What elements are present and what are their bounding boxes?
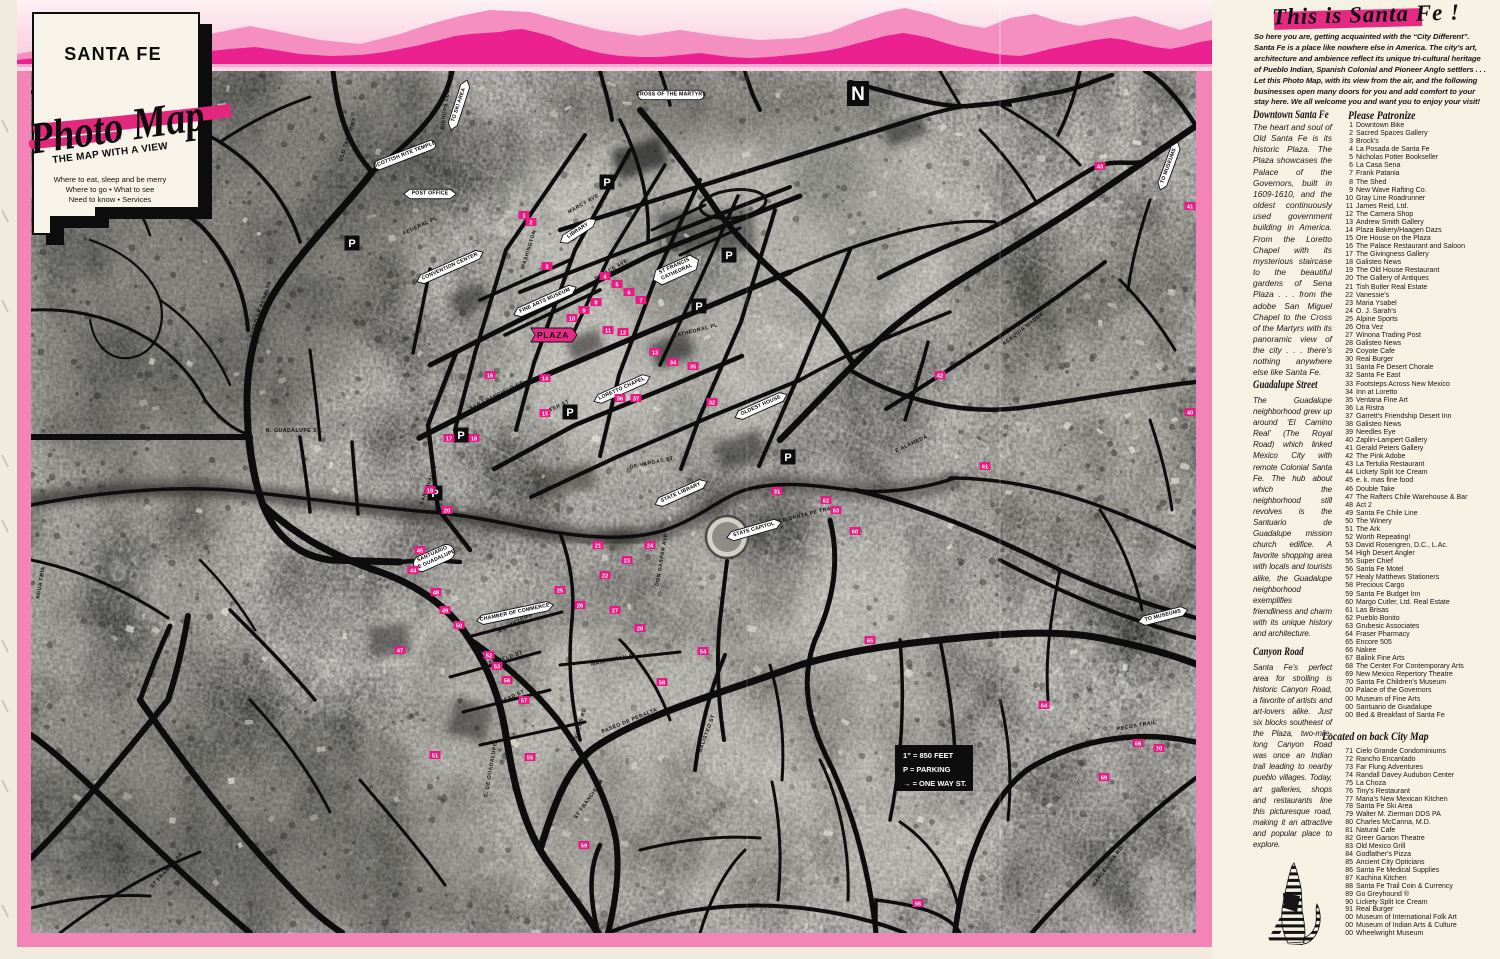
- svg-text:45: 45: [417, 548, 424, 554]
- svg-text:P: P: [457, 430, 464, 442]
- svg-text:36: 36: [617, 396, 624, 402]
- svg-text:22: 22: [602, 573, 608, 579]
- svg-text:70: 70: [1156, 746, 1162, 752]
- svg-text:P: P: [566, 407, 573, 419]
- svg-text:42: 42: [937, 373, 943, 379]
- svg-text:57: 57: [521, 698, 527, 704]
- svg-text:2: 2: [529, 220, 532, 226]
- svg-text:40: 40: [1187, 410, 1193, 416]
- svg-text:64: 64: [1041, 703, 1048, 709]
- svg-text:49: 49: [442, 608, 449, 614]
- svg-text:63: 63: [833, 508, 840, 514]
- svg-text:28: 28: [637, 626, 644, 632]
- svg-text:26: 26: [577, 603, 584, 609]
- svg-text:12: 12: [620, 330, 626, 336]
- svg-text:P: P: [725, 250, 732, 262]
- svg-text:P = PARKING: P = PARKING: [903, 765, 951, 774]
- svg-text:65: 65: [867, 638, 874, 644]
- svg-text:1” = 850 FEET: 1” = 850 FEET: [903, 751, 954, 760]
- svg-text:16: 16: [487, 373, 494, 379]
- svg-text:44: 44: [410, 568, 417, 574]
- svg-text:21: 21: [595, 543, 602, 549]
- svg-text:15: 15: [542, 411, 549, 417]
- svg-text:11: 11: [605, 328, 612, 334]
- svg-text:10: 10: [569, 316, 575, 322]
- svg-text:20: 20: [444, 508, 450, 514]
- svg-text:47: 47: [397, 648, 403, 654]
- svg-text:58: 58: [659, 680, 666, 686]
- svg-text:13: 13: [652, 350, 659, 356]
- svg-text:→ = ONE WAY ST.: → = ONE WAY ST.: [903, 779, 967, 788]
- svg-text:53: 53: [494, 664, 501, 670]
- svg-text:Need to know • Services: Need to know • Services: [69, 195, 152, 204]
- svg-text:51: 51: [432, 753, 439, 759]
- svg-text:31: 31: [774, 489, 781, 495]
- svg-text:18: 18: [471, 436, 478, 442]
- svg-text:19: 19: [427, 488, 434, 494]
- svg-text:41: 41: [1187, 204, 1194, 210]
- svg-text:14: 14: [542, 376, 549, 382]
- svg-text:62: 62: [823, 498, 829, 504]
- svg-text:34: 34: [670, 360, 677, 366]
- svg-text:27: 27: [612, 608, 618, 614]
- svg-text:PLAZA: PLAZA: [537, 330, 569, 340]
- svg-text:P: P: [784, 452, 791, 464]
- svg-text:SANTA FE: SANTA FE: [64, 44, 162, 64]
- svg-text:60: 60: [852, 529, 858, 535]
- svg-text:7: 7: [639, 298, 642, 304]
- svg-text:59: 59: [581, 843, 588, 849]
- svg-text:54: 54: [700, 649, 707, 655]
- svg-text:50: 50: [456, 623, 462, 629]
- svg-text:69: 69: [1101, 775, 1108, 781]
- svg-text:37: 37: [633, 396, 639, 402]
- svg-text:17: 17: [446, 436, 452, 442]
- svg-text:68: 68: [1135, 741, 1142, 747]
- svg-text:35: 35: [690, 364, 697, 370]
- svg-text:P: P: [348, 238, 355, 250]
- svg-text:43: 43: [1097, 164, 1104, 170]
- svg-text:61: 61: [982, 464, 989, 470]
- svg-text:CROSS OF THE MARTYRS: CROSS OF THE MARTYRS: [636, 92, 706, 98]
- svg-text:Where to eat, sleep and be mer: Where to eat, sleep and be merry: [54, 175, 167, 184]
- svg-text:32: 32: [709, 400, 715, 406]
- svg-text:N: N: [851, 84, 865, 105]
- svg-text:55: 55: [527, 755, 534, 761]
- svg-text:25: 25: [557, 588, 564, 594]
- svg-text:56: 56: [504, 678, 511, 684]
- svg-text:24: 24: [647, 543, 654, 549]
- svg-text:66: 66: [915, 901, 922, 907]
- svg-text:52: 52: [486, 653, 492, 659]
- svg-text:23: 23: [624, 558, 631, 564]
- svg-text:POST OFFICE: POST OFFICE: [412, 191, 449, 197]
- svg-text:N. GUADALUPE ST.: N. GUADALUPE ST.: [266, 428, 322, 434]
- svg-text:P: P: [603, 177, 610, 189]
- svg-text:P: P: [695, 301, 702, 313]
- svg-text:48: 48: [433, 590, 440, 596]
- svg-text:Where to go • What to see: Where to go • What to see: [66, 185, 155, 194]
